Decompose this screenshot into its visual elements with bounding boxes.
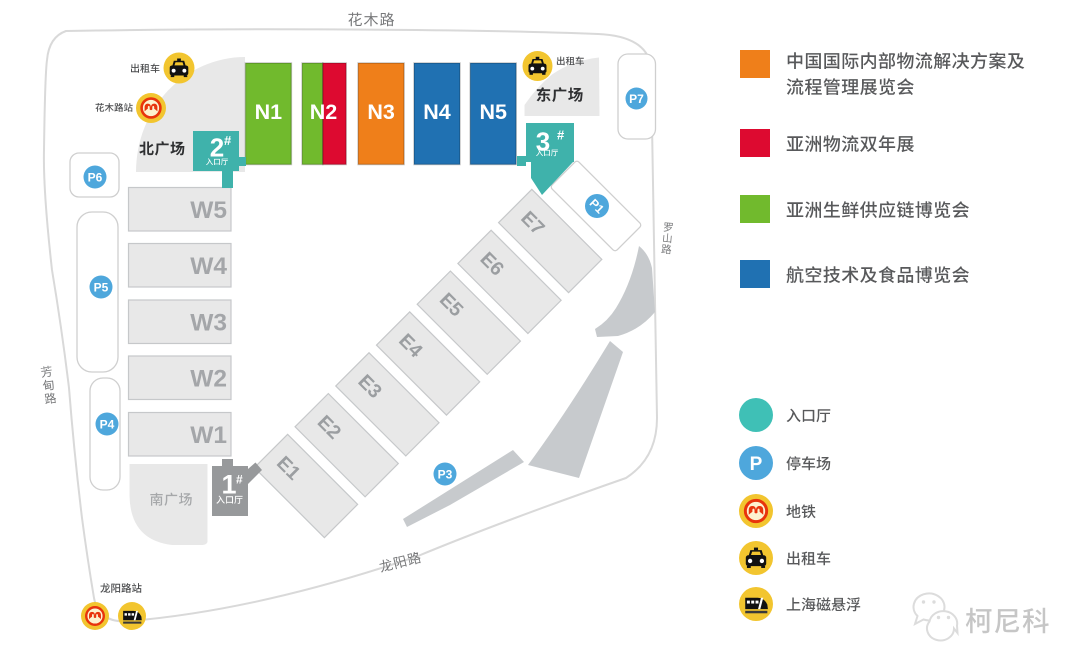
svg-text:P3: P3 — [438, 467, 453, 481]
svg-text:#: # — [224, 133, 232, 148]
svg-text:W3: W3 — [190, 310, 227, 337]
svg-text:P5: P5 — [94, 280, 109, 294]
svg-text:1: 1 — [221, 470, 236, 500]
svg-text:N4: N4 — [423, 100, 451, 124]
svg-text:N2: N2 — [310, 100, 338, 124]
svg-text:W2: W2 — [190, 366, 227, 393]
svg-text:2: 2 — [210, 133, 224, 163]
svg-text:P4: P4 — [100, 417, 115, 431]
svg-text:3: 3 — [536, 127, 550, 157]
svg-text:#: # — [236, 473, 243, 487]
svg-text:P: P — [750, 454, 763, 475]
svg-text:N5: N5 — [479, 100, 507, 124]
svg-text:W1: W1 — [190, 422, 227, 449]
svg-text:#: # — [557, 128, 565, 143]
svg-text:P6: P6 — [88, 170, 103, 184]
svg-text:N3: N3 — [367, 100, 395, 124]
svg-text:P7: P7 — [629, 92, 644, 106]
svg-text:N1: N1 — [255, 100, 283, 124]
svg-text:W5: W5 — [190, 197, 227, 224]
svg-text:W4: W4 — [190, 253, 227, 280]
